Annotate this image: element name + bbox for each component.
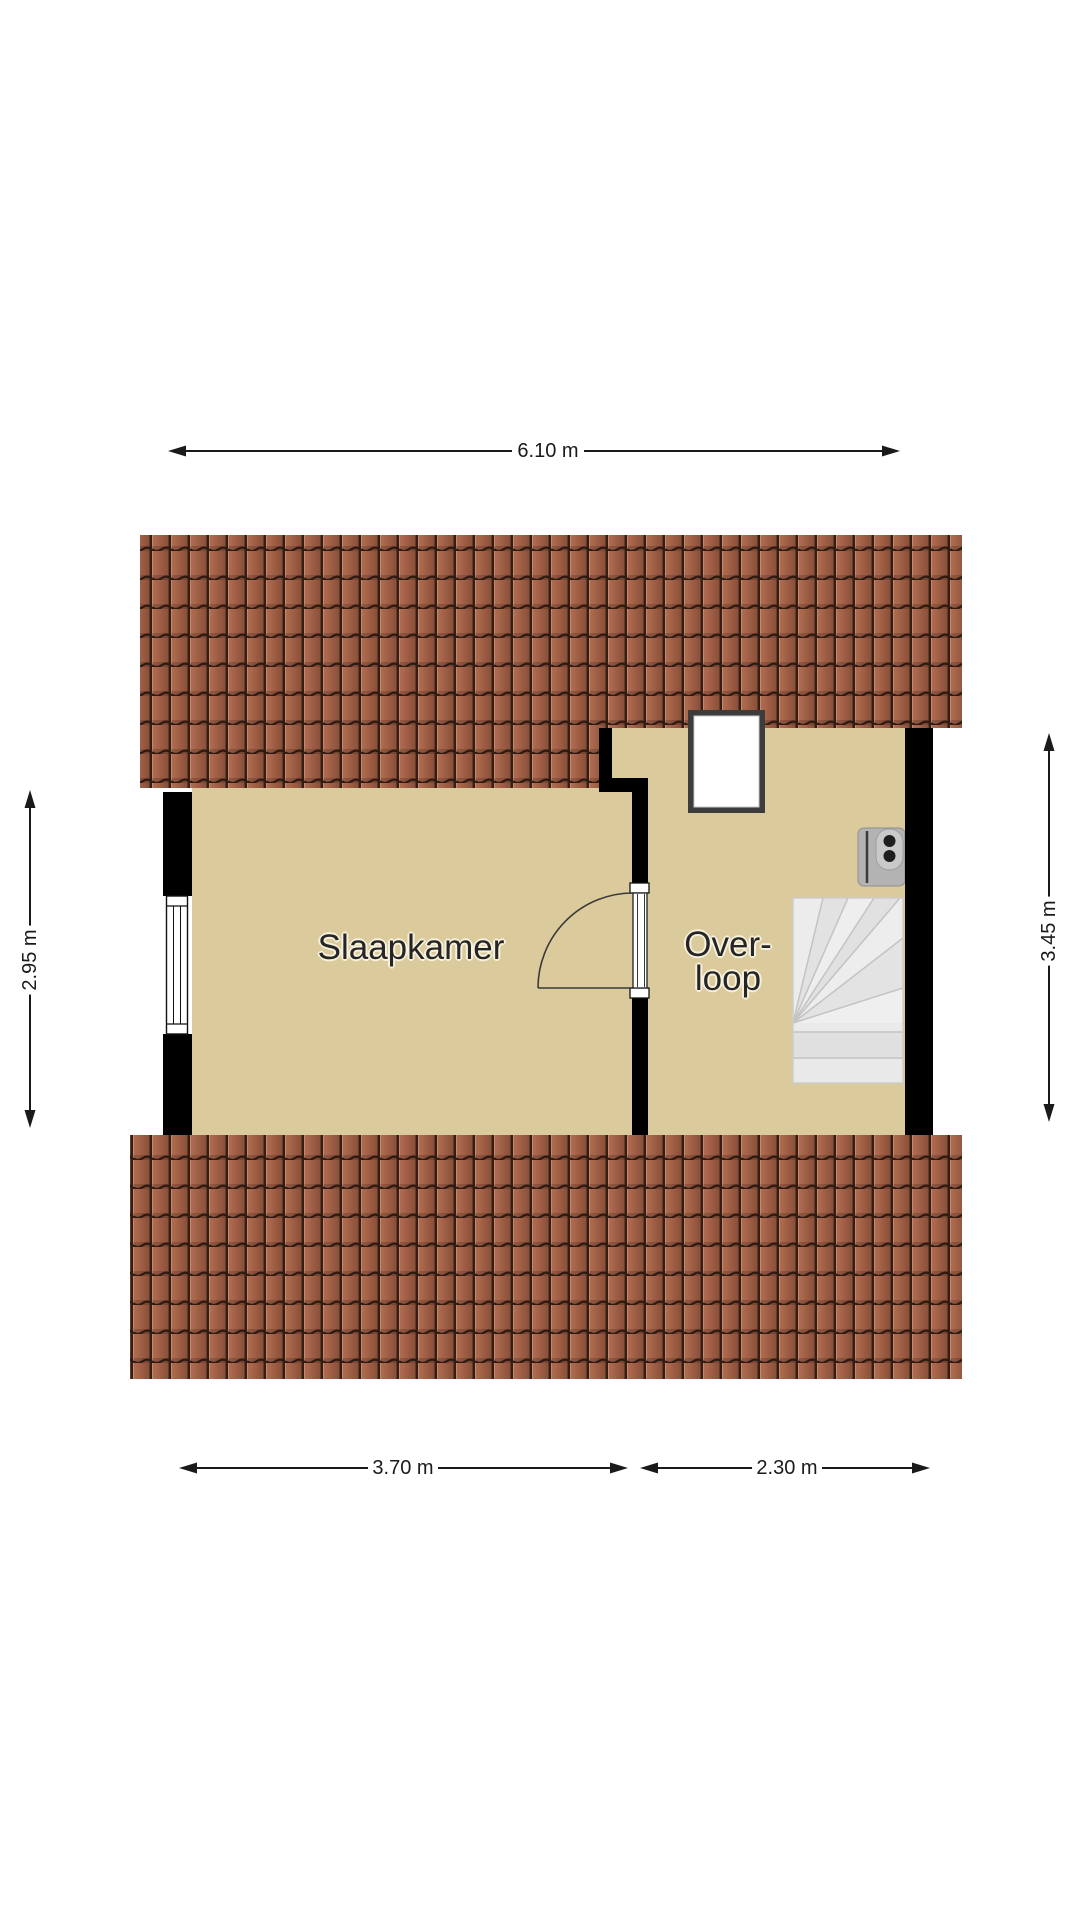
room-label-overloop: Over- loop <box>684 928 772 996</box>
door-post-top <box>630 883 649 893</box>
stairs <box>793 898 903 1083</box>
window-left <box>167 896 188 1034</box>
room-label-overloop-line1: Over- <box>684 928 772 962</box>
wall-left-upper <box>163 792 192 896</box>
dimension-label-bottom-right: 2.30 m <box>752 1456 821 1480</box>
room-label-slaapkamer: Slaapkamer <box>318 931 505 965</box>
wall-divider-lower <box>632 998 648 1135</box>
roof-bottom <box>130 1135 962 1379</box>
floorplan-drawing <box>0 0 1080 1920</box>
skylight <box>688 710 765 813</box>
wall-divider-upper <box>632 790 648 883</box>
door-post-bottom <box>630 988 649 998</box>
wall-right <box>905 728 933 1135</box>
floorplan-canvas: 6.10 m 2.95 m 3.45 m 3.70 m 2.30 m Slaap… <box>0 0 1080 1920</box>
room-label-overloop-line2: loop <box>684 962 772 996</box>
wall-left-lower <box>163 1034 192 1135</box>
wall-step-horizontal <box>599 778 648 792</box>
dimension-label-left: 2.95 m <box>18 925 42 994</box>
dimension-label-bottom-left: 3.70 m <box>368 1456 437 1480</box>
boiler-icon <box>858 828 905 886</box>
dimension-label-right: 3.45 m <box>1037 896 1061 965</box>
dimension-label-top: 6.10 m <box>513 439 582 463</box>
